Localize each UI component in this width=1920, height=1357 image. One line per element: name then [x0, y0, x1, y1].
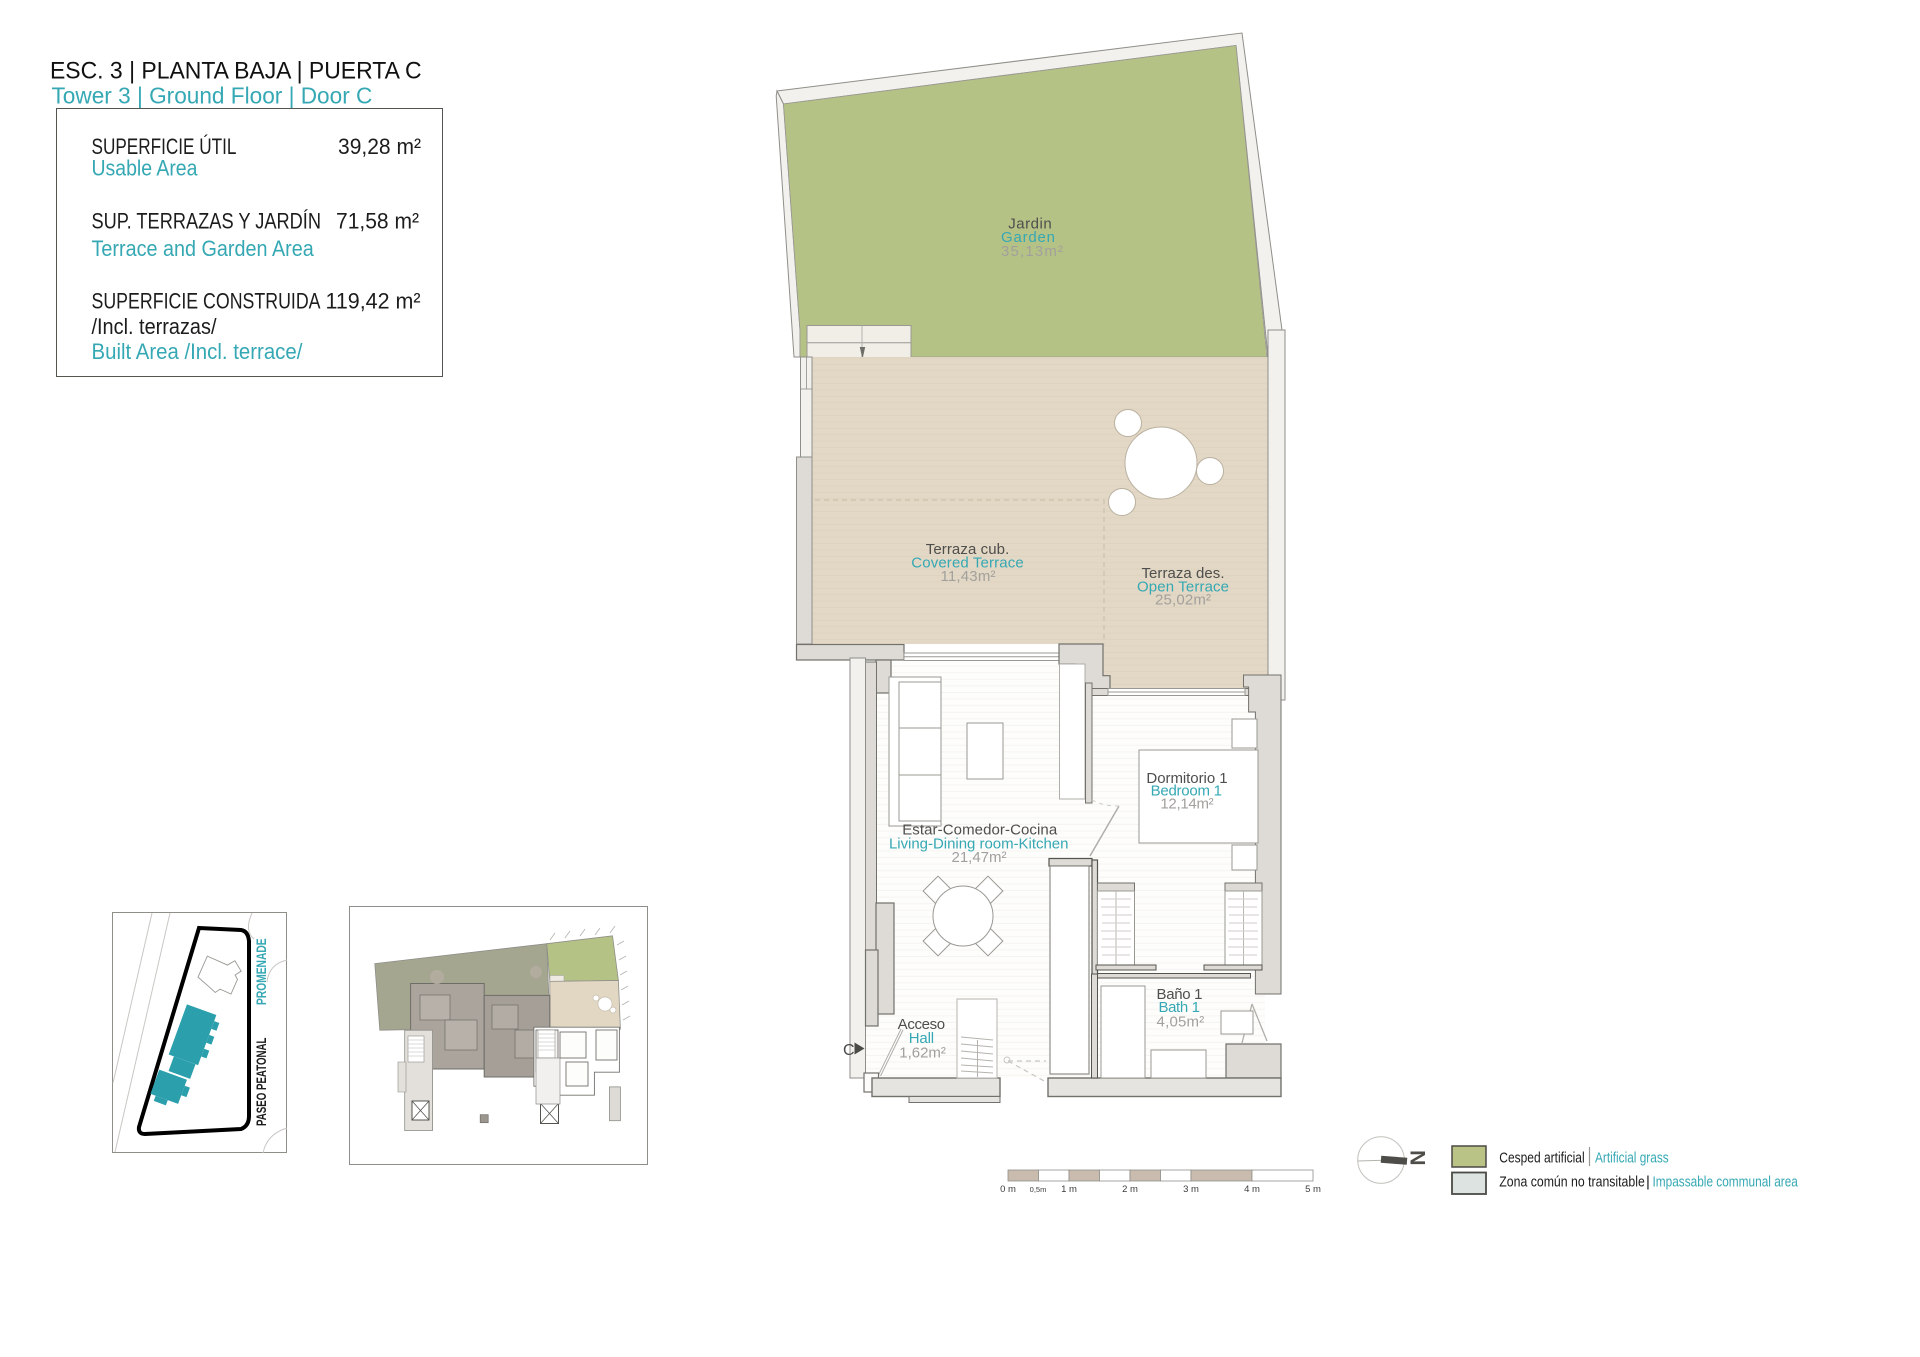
svg-text:3 m: 3 m — [1183, 1184, 1199, 1195]
svg-text:5 m: 5 m — [1305, 1184, 1321, 1195]
svg-text:C: C — [843, 1042, 855, 1059]
svg-text:21,47m²: 21,47m² — [952, 849, 1007, 866]
svg-text:0,5m: 0,5m — [1030, 1185, 1047, 1194]
svg-text:71,58 m²: 71,58 m² — [336, 208, 419, 234]
svg-text:35,13m²: 35,13m² — [1001, 243, 1063, 260]
svg-text:PROMENADE: PROMENADE — [254, 938, 270, 1005]
svg-text:11,43m²: 11,43m² — [941, 568, 996, 585]
svg-text:25,02m²: 25,02m² — [1155, 592, 1211, 609]
svg-text:SUP. TERRAZAS Y JARDÍN: SUP. TERRAZAS Y JARDÍN — [92, 209, 322, 234]
svg-text:Cesped artificial: Cesped artificial — [1499, 1149, 1584, 1166]
svg-text:4 m: 4 m — [1244, 1184, 1260, 1195]
svg-text:Usable Area: Usable Area — [92, 156, 198, 181]
svg-text:Zona común no transitable: Zona común no transitable — [1499, 1173, 1645, 1189]
svg-text:SUPERFICIE CONSTRUIDA: SUPERFICIE CONSTRUIDA — [92, 290, 321, 314]
svg-text:0 m: 0 m — [1000, 1184, 1016, 1195]
svg-text:|: | — [1646, 1173, 1650, 1190]
svg-text:39,28 m²: 39,28 m² — [338, 133, 421, 159]
svg-text:1,62m²: 1,62m² — [899, 1045, 946, 1062]
svg-text:Impassable communal area: Impassable communal area — [1653, 1173, 1799, 1190]
svg-text:1 m: 1 m — [1061, 1184, 1077, 1195]
svg-text:Artificial grass: Artificial grass — [1595, 1149, 1669, 1166]
svg-text:Terrace and Garden Area: Terrace and Garden Area — [92, 237, 314, 261]
svg-text:119,42 m²: 119,42 m² — [326, 288, 421, 314]
svg-text:/Incl. terrazas/: /Incl. terrazas/ — [92, 314, 217, 339]
svg-text:2 m: 2 m — [1122, 1184, 1138, 1195]
svg-text:ESC. 3 | PLANTA BAJA | PUERTA: ESC. 3 | PLANTA BAJA | PUERTA C — [50, 57, 422, 84]
svg-text:N: N — [1406, 1150, 1430, 1166]
svg-text:PASEO PEATONAL: PASEO PEATONAL — [255, 1038, 270, 1126]
svg-text:12,14m²: 12,14m² — [1160, 795, 1213, 812]
svg-text:4,05m²: 4,05m² — [1157, 1013, 1205, 1030]
svg-text:Built Area /Incl. terrace/: Built Area /Incl. terrace/ — [92, 339, 303, 364]
svg-text:Tower 3 | Ground Floor | Door: Tower 3 | Ground Floor | Door C — [52, 82, 373, 108]
